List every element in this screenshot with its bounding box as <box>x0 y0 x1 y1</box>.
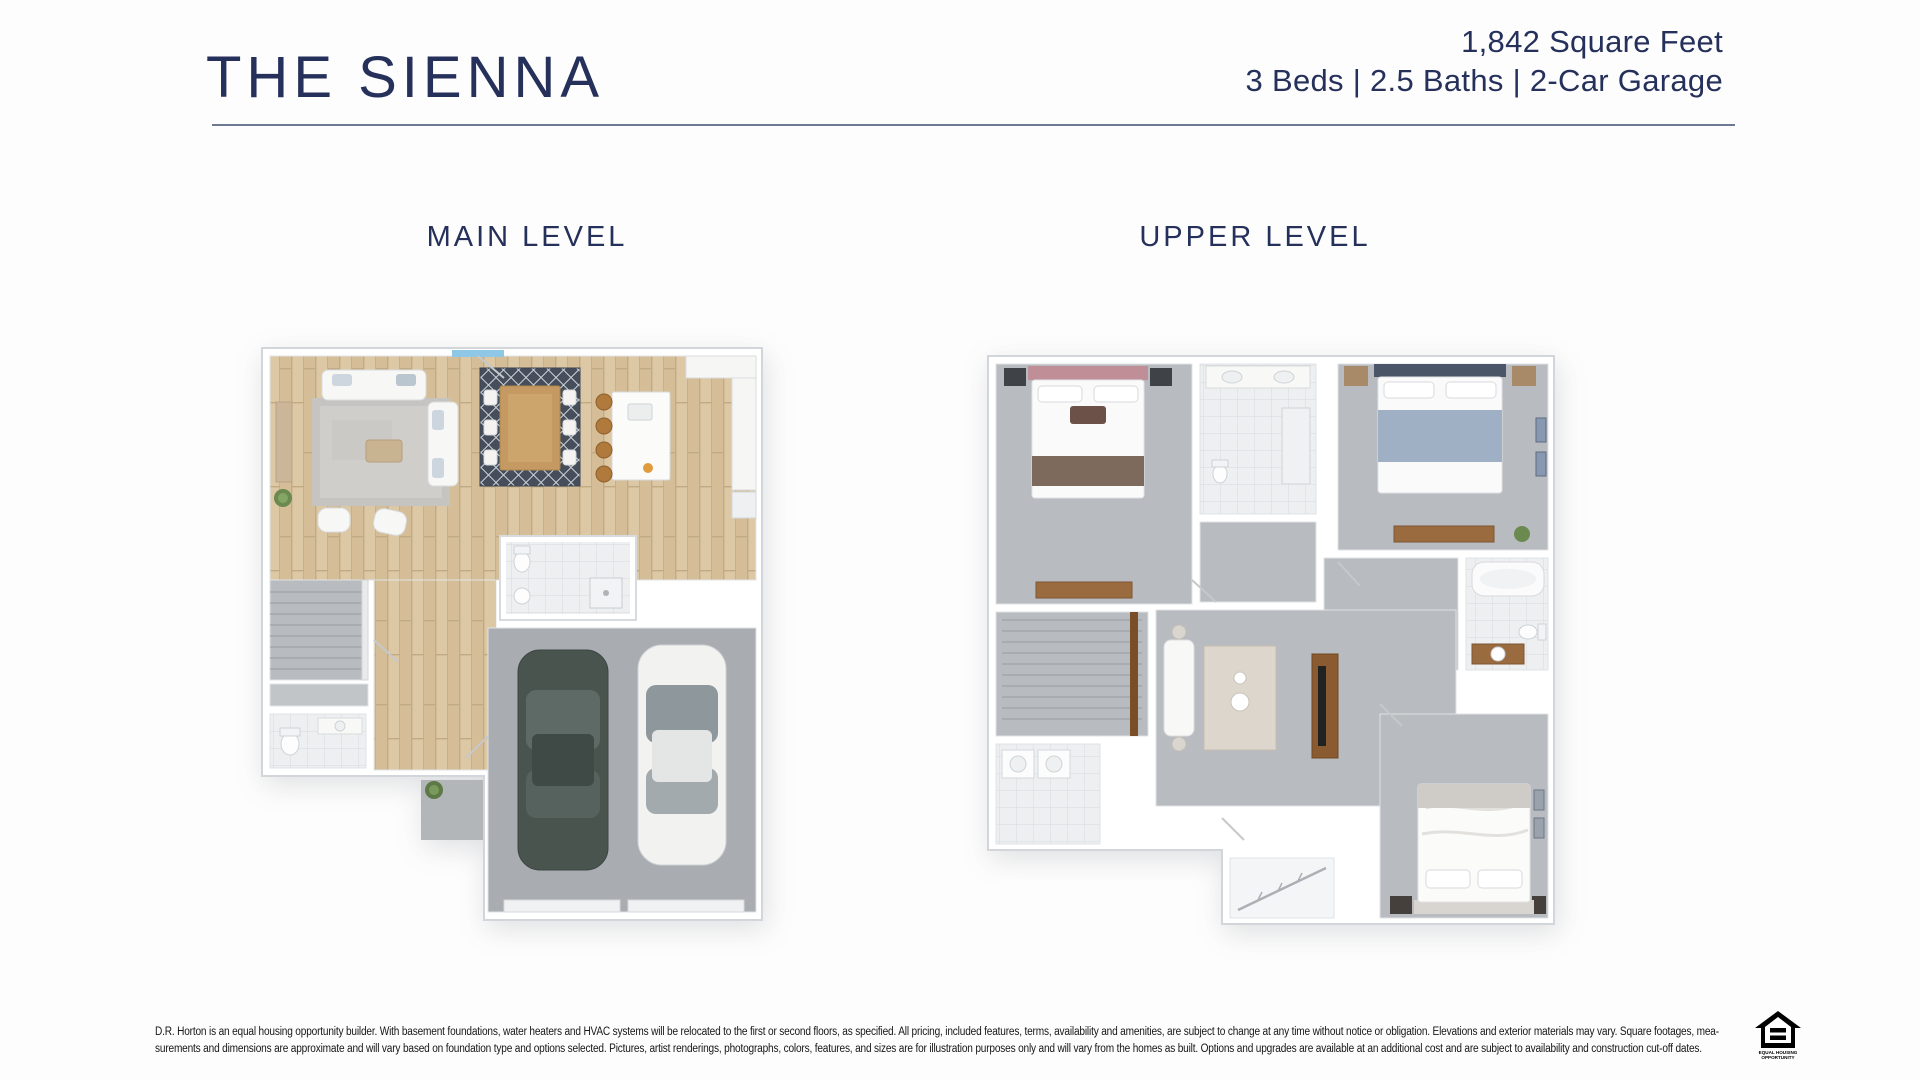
kitchen-counter <box>686 356 756 378</box>
dining-chair <box>563 420 576 435</box>
entry-walk <box>421 780 484 840</box>
bar-stool <box>596 466 612 482</box>
upper-level-label: UPPER LEVEL <box>1115 221 1395 254</box>
pedestal-sink <box>514 588 530 604</box>
wall-art <box>1536 418 1546 442</box>
square-feet-text: 1,842 Square Feet <box>1246 22 1723 61</box>
staircase <box>996 612 1148 736</box>
dining-area <box>480 368 580 486</box>
legal-disclaimer: D.R. Horton is an equal housing opportun… <box>155 1024 1744 1057</box>
bar-stool <box>596 394 612 410</box>
bedroom-2 <box>1338 364 1548 550</box>
loft-sofa <box>1164 640 1194 736</box>
upper-level-floorplan <box>982 348 1567 933</box>
dining-chair <box>563 390 576 405</box>
staircase <box>270 580 368 706</box>
plant <box>1514 526 1530 542</box>
upper-level-floorplan-image <box>982 348 1567 928</box>
wall-art <box>1536 452 1546 476</box>
stair-railing <box>1130 612 1138 736</box>
nightstand <box>1150 368 1172 386</box>
bar-stool <box>596 442 612 458</box>
hall-floor <box>1200 522 1316 602</box>
dining-chair <box>563 450 576 465</box>
garage-door <box>504 900 620 912</box>
nightstand <box>1344 366 1368 386</box>
toilet <box>1519 625 1537 639</box>
island-sink <box>628 404 652 420</box>
dining-chair <box>484 390 497 405</box>
garage <box>488 628 756 912</box>
bed-headboard <box>1028 366 1148 380</box>
nightstand <box>1390 896 1412 914</box>
walk-in-closet <box>1230 858 1334 918</box>
media-console <box>1312 654 1338 758</box>
nightstand <box>1512 366 1536 386</box>
wall-art <box>1534 818 1544 838</box>
equal-housing-house-icon: EQUAL HOUSING OPPORTUNITY <box>1754 1010 1802 1060</box>
refrigerator <box>732 492 756 518</box>
bar-stool <box>596 418 612 434</box>
dining-chair <box>484 420 497 435</box>
page-title: THE SIENNA <box>206 44 604 111</box>
toilet <box>514 552 530 572</box>
front-window <box>452 350 504 357</box>
eho-text-line-2: OPPORTUNITY <box>1761 1055 1794 1060</box>
hallway-floor <box>374 580 496 770</box>
dining-chair <box>484 450 497 465</box>
kitchen-wall-counter <box>732 378 756 490</box>
toilet <box>1213 465 1227 483</box>
laundry-room <box>996 744 1100 844</box>
stair-railing <box>362 580 368 680</box>
disclaimer-line-1: D.R. Horton is an equal housing opportun… <box>155 1024 1744 1041</box>
powder-room <box>500 536 636 620</box>
car-white <box>638 645 726 865</box>
bedroom-1 <box>996 364 1192 604</box>
car-dark <box>518 650 608 870</box>
dresser <box>1394 526 1494 542</box>
main-level-floorplan-image <box>256 340 784 928</box>
bathroom-1 <box>1200 364 1316 514</box>
equal-housing-opportunity-logo: EQUAL HOUSING OPPORTUNITY <box>1754 1010 1802 1065</box>
wall-art <box>1534 790 1544 810</box>
header-divider-line <box>212 124 1735 126</box>
disclaimer-line-2: surements and dimensions are approximate… <box>155 1041 1744 1058</box>
home-stats: 1,842 Square Feet 3 Beds | 2.5 Baths | 2… <box>1246 22 1723 100</box>
main-level-floorplan <box>256 340 784 933</box>
shower <box>1282 408 1310 484</box>
bedroom-3 <box>1380 714 1548 918</box>
main-bathroom <box>270 714 366 768</box>
armchair <box>318 508 350 532</box>
garage-door <box>628 900 744 912</box>
fruit-bowl <box>643 463 653 473</box>
nightstand <box>1532 896 1546 914</box>
bathroom-2 <box>1466 558 1548 670</box>
bed-headboard <box>1374 364 1506 377</box>
dresser <box>1036 582 1132 598</box>
flyer-page: THE SIENNA 1,842 Square Feet 3 Beds | 2.… <box>0 0 1920 1080</box>
console-table <box>276 402 292 482</box>
beds-baths-garage-text: 3 Beds | 2.5 Baths | 2-Car Garage <box>1246 61 1723 100</box>
main-level-label: MAIN LEVEL <box>387 221 667 254</box>
nightstand <box>1004 368 1026 386</box>
coffee-table <box>366 440 402 462</box>
